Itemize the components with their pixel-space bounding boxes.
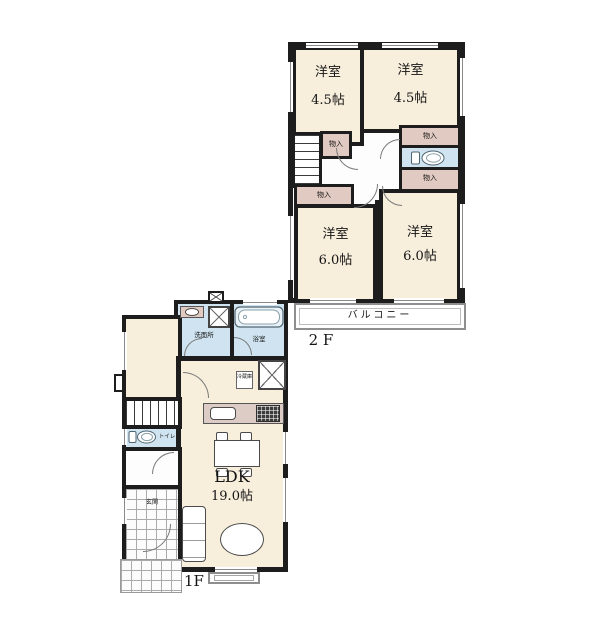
pipe-space	[208, 291, 224, 303]
bathtub-icon	[234, 306, 284, 328]
window	[382, 43, 438, 48]
closet-label: 物入	[399, 132, 461, 140]
window	[122, 498, 127, 524]
window	[122, 429, 127, 445]
porch-step-inner	[214, 575, 254, 581]
closet-label: 物入	[320, 140, 352, 148]
balcony-label: バルコニー	[294, 310, 466, 322]
approach-tiles	[120, 559, 182, 593]
washbasin-icon	[185, 308, 199, 316]
living-table-icon	[220, 523, 264, 556]
room-2f-top-left-name: 洋室	[292, 66, 364, 81]
toilet-icon	[128, 429, 158, 445]
ldk-name: LDK	[176, 468, 288, 486]
room-2f-bottom-left-name: 洋室	[294, 228, 377, 243]
cupboard-icon	[258, 360, 286, 390]
window	[460, 204, 465, 288]
room-2f-top-right-size: 4.5帖	[360, 92, 461, 107]
ldk-size: 19.0帖	[176, 490, 288, 505]
entrance-label: 玄関	[122, 500, 182, 507]
toilet-icon	[410, 149, 448, 167]
room-2f-bottom-right-size: 6.0帖	[379, 250, 461, 265]
window	[306, 43, 358, 48]
bathroom-label: 浴室	[234, 336, 284, 343]
staircase-2f	[292, 132, 322, 188]
window	[283, 432, 288, 464]
closet-label: 物入	[399, 174, 461, 182]
window	[288, 216, 293, 280]
window	[310, 298, 356, 303]
floor1-label: 1F	[178, 573, 210, 590]
room-2f-top-left-size: 4.5帖	[292, 94, 364, 109]
closet-label: 物入	[294, 191, 354, 199]
window	[215, 567, 257, 572]
sofa-icon	[182, 506, 206, 562]
room-2f-bottom-right	[379, 189, 461, 303]
window	[460, 58, 465, 116]
washroom-label: 洗面所	[176, 332, 232, 339]
refrigerator-icon: 冷蔵庫	[236, 371, 253, 389]
window	[283, 478, 288, 522]
hall-1f	[122, 315, 182, 401]
room-2f-top-right-name: 洋室	[360, 64, 461, 79]
toilet-label: トイレ	[156, 434, 178, 440]
floor2-label: 2 F	[296, 332, 346, 349]
washing-machine-icon	[208, 306, 230, 328]
room-2f-bottom-right-name: 洋室	[379, 226, 461, 241]
window	[122, 332, 127, 370]
room-2f-top-right	[360, 46, 461, 133]
room-2f-bottom-left-size: 6.0帖	[294, 254, 377, 269]
window	[243, 300, 277, 305]
dining-table-icon	[214, 440, 260, 467]
kitchen-sink-icon	[210, 407, 236, 420]
bay-window-box	[114, 374, 124, 392]
window	[394, 298, 444, 303]
stove-icon	[256, 405, 280, 422]
refrigerator-label: 冷蔵庫	[237, 372, 252, 380]
window	[288, 62, 293, 112]
